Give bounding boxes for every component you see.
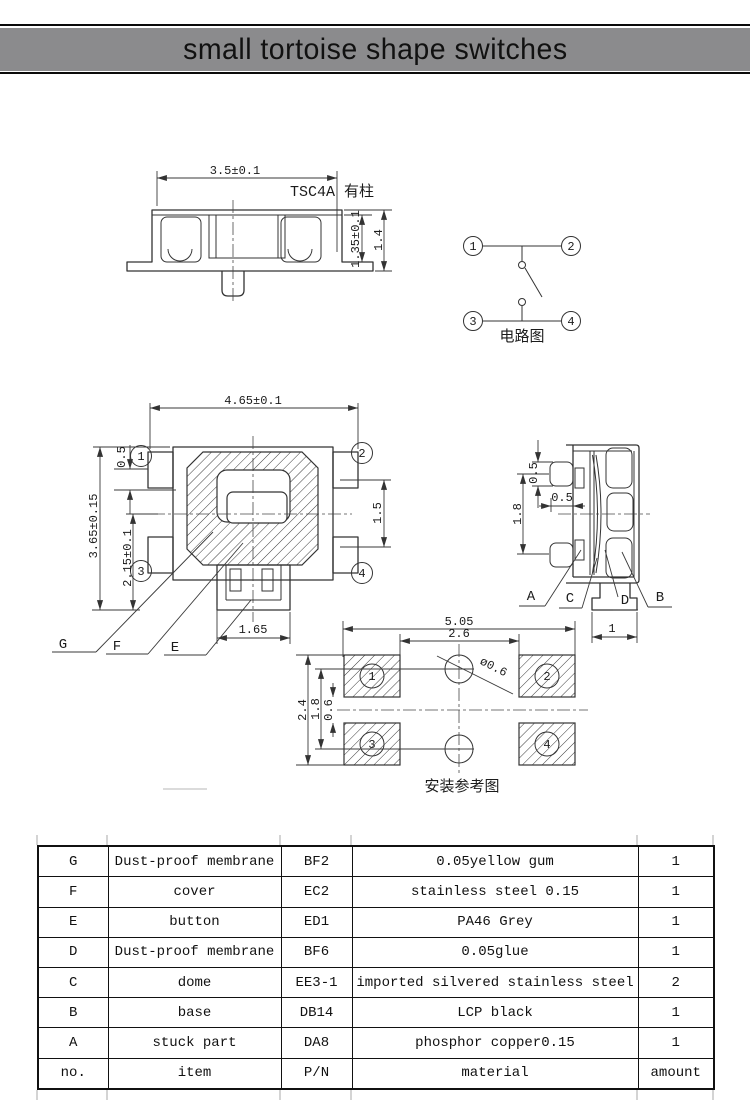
cell-amount: 1 [638, 937, 714, 967]
col-header-material: material [352, 1058, 638, 1089]
col-header-amount: amount [638, 1058, 714, 1089]
cell-amount: 1 [638, 1028, 714, 1058]
part-label-g: G [59, 637, 67, 653]
cell-material: stainless steel 0.15 [352, 877, 638, 907]
dim-button-height-label: 1.5 [371, 502, 385, 524]
cell-item: Dust-proof membrane [108, 937, 281, 967]
mounting-reference-drawing: 5.05 2.6 1 2 3 4 2.4 [296, 615, 588, 796]
cell-no: D [38, 937, 108, 967]
right-side-view-drawing: 0.5 0.5 1.8 1 A C D B [511, 440, 672, 643]
cell-no: G [38, 846, 108, 877]
dim-terminal-length-label: 0.5 [551, 491, 573, 505]
cell-no: C [38, 967, 108, 997]
cell-no: A [38, 1028, 108, 1058]
table-row: B base DB14 LCP black 1 [38, 998, 714, 1028]
dim-body-height-label: 1.35±0.1 [349, 210, 363, 268]
cell-pn: EE3-1 [281, 967, 352, 997]
col-header-pn: P/N [281, 1058, 352, 1089]
circuit-pin-2: 2 [567, 240, 574, 254]
cell-item: stuck part [108, 1028, 281, 1058]
dim-terminal-thickness-label: 0.5 [527, 462, 541, 484]
cell-pn: BF6 [281, 937, 352, 967]
table-row: E button ED1 PA46 Grey 1 [38, 907, 714, 937]
part-label-a: A [527, 589, 536, 605]
cell-item: Dust-proof membrane [108, 846, 281, 877]
cell-amount: 2 [638, 967, 714, 997]
top-view-pin-1: 1 [137, 450, 144, 464]
table-row: D Dust-proof membrane BF6 0.05glue 1 [38, 937, 714, 967]
dim-terminal-pitch-label: 1.8 [511, 503, 525, 525]
cell-pn: BF2 [281, 846, 352, 877]
mount-pad-2: 2 [543, 670, 550, 684]
cell-amount: 1 [638, 907, 714, 937]
dim-corner-offset-label: 0.5 [115, 446, 129, 468]
cell-item: base [108, 998, 281, 1028]
dim-pad-gap-height-label: 0.6 [322, 699, 336, 721]
cell-no: B [38, 998, 108, 1028]
cell-material: PA46 Grey [352, 907, 638, 937]
table-row: A stuck part DA8 phosphor copper0.15 1 [38, 1028, 714, 1058]
dim-lower-height-label: 2.15±0.1 [121, 529, 135, 587]
cell-item: dome [108, 967, 281, 997]
cell-no: E [38, 907, 108, 937]
cell-material: phosphor copper0.15 [352, 1028, 638, 1058]
cell-amount: 1 [638, 877, 714, 907]
cell-material: imported silvered stainless steel [352, 967, 638, 997]
circuit-pin-3: 3 [469, 315, 476, 329]
cell-pn: ED1 [281, 907, 352, 937]
cell-pn: DA8 [281, 1028, 352, 1058]
cell-material: 0.05glue [352, 937, 638, 967]
dim-stem-width-label: 1.65 [239, 623, 268, 637]
cell-no: F [38, 877, 108, 907]
col-header-item: item [108, 1058, 281, 1089]
dim-top-height-label: 3.65±0.15 [87, 494, 101, 559]
col-header-no: no. [38, 1058, 108, 1089]
table-row: C dome EE3-1 imported silvered stainless… [38, 967, 714, 997]
part-label-c: C [566, 591, 574, 607]
table-row: G Dust-proof membrane BF2 0.05yellow gum… [38, 846, 714, 877]
part-label-f: F [113, 639, 121, 655]
circuit-caption: 电路图 [499, 328, 544, 346]
parts-table: G Dust-proof membrane BF2 0.05yellow gum… [37, 845, 715, 1090]
mount-pad-3: 3 [368, 738, 375, 752]
cell-item: cover [108, 877, 281, 907]
cell-amount: 1 [638, 998, 714, 1028]
top-view-pin-2: 2 [358, 447, 365, 461]
part-label-b: B [656, 590, 664, 606]
mounting-caption: 安装参考图 [424, 778, 499, 796]
circuit-pin-1: 1 [469, 240, 476, 254]
table-header-row: no. item P/N material amount [38, 1058, 714, 1089]
model-label: TSC4A 有柱 [290, 183, 374, 201]
part-label-e: E [171, 640, 179, 656]
top-view-pin-4: 4 [358, 567, 365, 581]
top-view-drawing: 4.65±0.1 1 2 3 4 [52, 394, 391, 656]
dim-foot-width-label: 1 [608, 622, 615, 636]
cell-amount: 1 [638, 846, 714, 877]
cell-pn: EC2 [281, 877, 352, 907]
cell-item: button [108, 907, 281, 937]
mount-pad-1: 1 [368, 670, 375, 684]
dim-width-label: 3.5±0.1 [210, 164, 260, 178]
dim-hole-pitch-label: 1.8 [309, 698, 323, 720]
dim-total-height-label: 1.4 [372, 229, 386, 251]
dim-top-width-label: 4.65±0.1 [224, 394, 282, 408]
circuit-diagram: 1 2 3 4 电路图 [464, 237, 581, 347]
mount-pad-4: 4 [543, 738, 550, 752]
part-label-d: D [621, 593, 629, 609]
table-row: F cover EC2 stainless steel 0.15 1 [38, 877, 714, 907]
circuit-pin-4: 4 [567, 315, 574, 329]
dim-outer-height-label: 2.4 [296, 699, 310, 721]
cell-material: LCP black [352, 998, 638, 1028]
cell-pn: DB14 [281, 998, 352, 1028]
dim-hole-diameter-label: ø0.6 [477, 655, 509, 681]
cell-material: 0.05yellow gum [352, 846, 638, 877]
dim-pad-gap-width-label: 2.6 [448, 627, 470, 641]
top-view-pin-3: 3 [137, 565, 144, 579]
datasheet-page: small tortoise shape switches 3.5±0.1 TS… [0, 0, 750, 1112]
side-view-front-drawing: 3.5±0.1 TSC4A 有柱 1.35±0.1 1.4 [127, 164, 392, 303]
